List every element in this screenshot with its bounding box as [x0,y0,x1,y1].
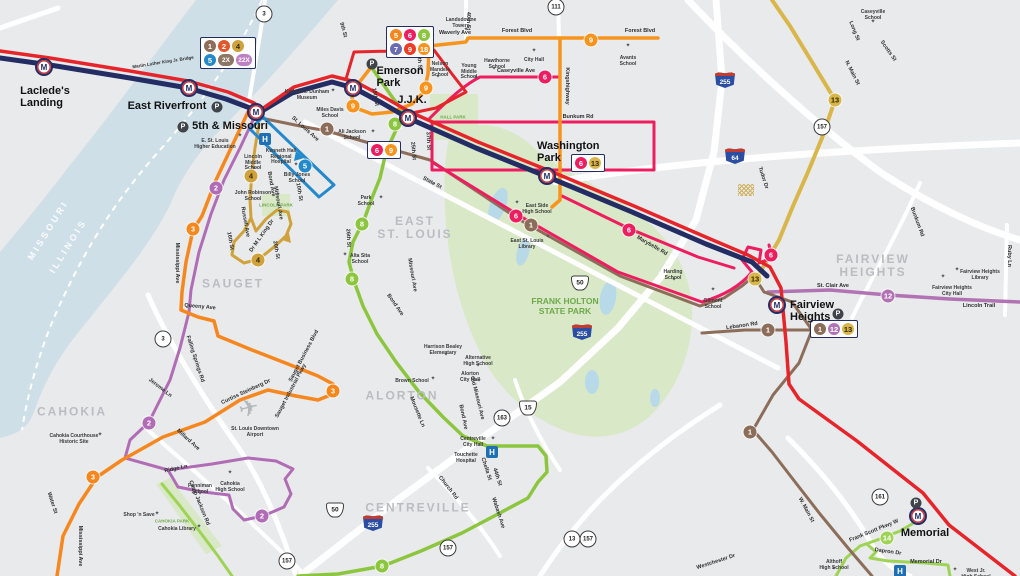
street-label: Dr M L King Dr [249,219,276,254]
landmark-diamond-icon: ✦ [531,48,536,54]
street-label: N. Main St [843,60,860,86]
poi-label: Brown School [395,379,429,385]
route-shield: 157 [580,531,597,548]
metrolink-station-east-riverfront: M [180,79,198,97]
landmark-diamond-icon: ✦ [491,66,496,72]
street-label: Wabash Ave [490,497,506,529]
street-label: Kingshighway [564,67,570,104]
poi-label: Hawthorne School [484,59,510,70]
poi-label: Landsdowne Towers [446,18,477,29]
route-shield: 13 [564,531,581,548]
landmark-diamond-icon: ✦ [870,19,875,25]
interstate-shield: 255 [363,515,383,531]
street-label: Millard Ave [175,428,201,452]
route-13-badge: 13 [829,94,842,107]
landmark-diamond-icon: ✦ [430,376,435,382]
poi-label: Shop 'n Save [123,513,154,519]
station-label-lacledes-landing: Laclede's Landing [20,86,70,109]
landmark-diamond-icon: ✦ [154,511,159,517]
route-5-badge: 5 [204,54,216,66]
area-label: CAHOKIA [37,406,107,419]
shield-number: 255 [577,330,588,340]
street-label: Lincoln Trail [963,303,995,309]
street-label: Missouri Ave [406,258,418,292]
map-labels-layer: SAUGETCAHOKIAEAST ST. LOUISALORTONCENTRE… [0,0,1020,576]
street-label: Scotts St [879,40,898,63]
landmark-diamond-icon: ✦ [237,133,242,139]
route-4-badge: 4 [252,254,265,267]
route-12-badge: 12 [828,323,840,335]
route-6-badge: 6 [623,224,636,237]
park-ride-icon: P [367,59,378,70]
poi-label: Touchette Hospital [454,453,478,464]
street-label: Water St [46,492,59,515]
street-label: Forest Blvd [625,28,655,34]
route-1-badge: 1 [744,426,757,439]
badge-row: 52X22X [204,54,252,66]
landmark-diamond-icon: ✦ [476,378,481,384]
poi-label: Billy Jones School [284,173,310,184]
street-label: Ruby Ln [1006,245,1012,267]
landmark-diamond-icon: ✦ [710,287,715,293]
poi-label: Avants School [620,56,637,67]
route-badge-box: 5687918 [386,26,434,58]
poi-label: Fairview Heights Library [960,270,1000,281]
poi-label: Kenneth Hall Regional Hospital [266,149,297,166]
hatched-area-icon [738,184,754,196]
route-6-badge: 6 [404,29,416,41]
route-1-badge: 1 [204,40,216,52]
route-3-badge: 3 [187,223,200,236]
poi-label: East Side High School [522,204,551,215]
us-route-shield: 50 [326,503,344,518]
route-7-badge: 7 [390,43,402,55]
badge-row: 124 [204,40,252,52]
station-label-emerson-park: Emerson Park [376,66,423,89]
shield-number: 255 [368,521,379,531]
us-route-shield: 15 [519,401,537,416]
landmark-diamond-icon: ✦ [435,74,440,80]
landmark-diamond-icon: ✦ [831,566,836,572]
landmark-diamond-icon: ✦ [275,192,280,198]
route-2-badge: 2 [218,40,230,52]
route-9-badge: 9 [404,43,416,55]
park-ride-icon: P [833,309,844,320]
route-4-badge: 4 [245,170,258,183]
street-label: 15th St [370,87,379,106]
route-2-badge: 2 [256,510,269,523]
poi-label: East St. Louis Library [510,239,543,250]
route-5-badge: 5 [299,160,312,173]
station-label-memorial: Memorial [901,528,949,540]
poi-label: City Hall [524,58,544,64]
landmark-diamond-icon: ✦ [196,524,201,530]
landmark-diamond-icon: ✦ [625,43,630,49]
street-label: State St [422,176,443,191]
poi-label: Gilmont School [704,299,723,310]
route-9-badge: 9 [385,144,397,156]
route-6-badge: 6 [371,144,383,156]
landmark-diamond-icon: ✦ [954,267,959,273]
shield-band [725,148,745,152]
landmark-diamond-icon: ✦ [330,88,335,94]
route-14-badge: 14 [881,532,894,545]
route-1-badge: 1 [525,219,538,232]
airplane-icon: ✈ [236,395,261,423]
route-shield: 3 [155,331,172,348]
landmark-diamond-icon: ✦ [463,27,468,33]
landmark-diamond-icon: ✦ [514,200,519,206]
route-3-badge: 3 [327,385,340,398]
shield-number: 255 [720,78,731,88]
park-ride-icon: P [212,102,223,113]
street-label: Queeny Ave [184,303,216,312]
hospital-icon: H [486,446,498,458]
street-label: 9th St [338,22,348,38]
street-label: Bunkum Rd [909,206,925,237]
route-shield: 157 [814,119,831,136]
route-shield: 163 [494,410,511,427]
metrolink-station-5th-missouri: M [247,103,265,121]
badge-row: 7918 [390,43,430,55]
landmark-diamond-icon: ✦ [545,234,550,240]
street-label: Bunkum Rd [563,114,594,120]
landmark-diamond-icon: ✦ [475,363,480,369]
area-label: ALORTON [365,390,438,403]
park-ride-icon: P [911,498,922,509]
poi-label: John Robinson School [235,191,271,202]
badge-row: 568 [390,29,430,41]
route-1-badge: 1 [762,324,775,337]
interstate-shield: 64 [725,148,745,164]
poi-label: Miles Davis School [316,108,343,119]
route-2-badge: 2 [143,417,156,430]
street-label: Jerome Ln [147,377,173,399]
landmark-diamond-icon: ✦ [671,277,676,283]
poi-label: Cahokia High School [215,482,244,493]
street-label: Martin Luther King Jr. Bridge [132,55,194,70]
street-label: Mississippi Ave [77,526,83,567]
transit-map: SAUGETCAHOKIAEAST ST. LOUISALORTONCENTRE… [0,0,1020,576]
street-label: Church Rd [437,475,459,501]
interstate-shield: 255 [572,324,592,340]
area-label: SAUGET [202,278,264,291]
shield-band [572,324,592,328]
station-label-fairview-heights: Fairview Heights [790,300,834,323]
badge-row: 11213 [814,323,854,335]
route-1-badge: 1 [321,123,334,136]
street-label: Lebanon Rd [726,321,758,331]
metrolink-station-memorial: M [909,507,927,525]
street-label: Sauget Business Blvd [288,329,320,383]
poi-label: Fairview Heights City Hall [932,286,972,297]
street-label: Falling Springs Rd [185,335,206,383]
route-shield: 157 [279,553,296,570]
park-label: FRANK HOLTON STATE PARK [531,297,598,317]
area-label: CENTREVILLE [365,502,470,515]
interstate-shield: 255 [715,72,735,88]
area-label: EAST ST. LOUIS [377,215,452,241]
landmark-diamond-icon: ✦ [490,436,495,442]
street-label: Mississippi Ave [174,243,180,284]
route-badge-box: 69 [367,141,401,159]
landmark-diamond-icon: ✦ [97,432,102,438]
route-shield: 3 [256,6,273,23]
route-9-badge: 9 [347,100,360,113]
street-label: 44th St [491,467,502,486]
street-label: Russell Ave [239,206,250,237]
street-label: Westchester Dr [696,553,736,571]
route-8-badge: 8 [376,560,389,573]
route-1-badge: 1 [814,323,826,335]
metrolink-station-emerson-park: M [344,79,362,97]
route-8-badge: 8 [346,273,359,286]
street-label: Dapron Dr [874,547,901,557]
street-label: Memorial Dr [910,559,942,565]
landmark-diamond-icon: ✦ [378,195,383,201]
route-shield: 111 [548,0,565,16]
street-label: 25th St [409,142,417,161]
route-6-badge: 6 [510,210,523,223]
shield-band [715,72,735,76]
route-8-badge: 8 [418,29,430,41]
poi-label: Park School [358,196,375,207]
poi-label: Alta Sita School [350,254,370,265]
route-6-badge: 6 [765,249,778,262]
landmark-diamond-icon: ✦ [473,75,478,81]
route-4-badge: 4 [232,40,244,52]
metrolink-station-lacledes-landing: M [35,58,53,76]
hospital-icon: H [259,133,271,145]
landmark-diamond-icon: ✦ [370,129,375,135]
route-badge-box: 12452X22X [200,37,256,69]
landmark-diamond-icon: ✦ [342,252,347,258]
street-label: 10th St [294,182,303,201]
street-label: 26th St [345,229,352,248]
metrolink-station-jjk: M [399,109,417,127]
poi-label: Cahokia Courthouse Historic Site [50,434,99,445]
street-label: 16th St [225,231,234,250]
route-13-badge: 13 [842,323,854,335]
shield-band [363,515,383,519]
street-label: Bond Ave [457,404,468,430]
street-label: Bond Ave [385,293,404,317]
airport-label: St. Louis Downtown Airport [231,427,279,438]
street-label: Forest Blvd [502,28,532,34]
route-2X-badge: 2X [218,54,234,66]
route-5-badge: 5 [390,29,402,41]
us-route-shield: 50 [571,276,589,291]
street-label: W. Main St [797,496,815,523]
street-label: Tudor Dr [757,166,770,190]
street-label: Marybelle Rd [636,235,669,257]
poi-label: Katherine Dunham Museum [285,90,329,101]
route-shield: 161 [872,489,889,506]
route-9-badge: 9 [585,34,598,47]
route-13-badge: 13 [749,273,762,286]
landmark-diamond-icon: ✦ [443,352,448,358]
street-label: Long St [847,20,860,41]
street-label: St. Clair Ave [817,283,849,289]
poi-label: Ali Jackson School [338,130,366,141]
street-label: 20th St [271,240,280,259]
landmark-diamond-icon: ✦ [227,470,232,476]
street-label: Ridge Ln [164,464,188,475]
street-label: 37th St [425,132,432,151]
route-3-badge: 3 [87,471,100,484]
poi-label: West Jr. High School [961,569,990,576]
route-12-badge: 12 [882,290,895,303]
station-label-east-riverfront: East Riverfront [128,101,207,113]
station-label-jjk: J.J.K. [397,95,426,107]
hospital-icon: H [894,565,906,576]
poi-label: Cahokia Library [158,527,196,533]
metrolink-station-fairview-heights: M [768,296,786,314]
park-label: CAHOKIA PARK [155,518,190,523]
shield-number: 64 [731,154,738,164]
route-shield: 157 [440,540,457,557]
badge-row: 69 [371,144,397,156]
route-8-badge: 8 [356,218,369,231]
street-label: St. Louis Ave [290,115,320,143]
area-label: FAIRVIEW HEIGHTS [836,253,910,279]
poi-label: Centreville City Hall [460,437,486,448]
metrolink-station-washington-park: M [538,167,556,185]
landmark-diamond-icon: ✦ [940,274,945,280]
route-22X-badge: 22X [236,54,252,66]
landmark-diamond-icon: ✦ [952,567,957,573]
route-6-badge: 6 [539,71,552,84]
station-label-5th-missouri: 5th & Missouri [192,121,268,133]
station-label-washington-park: Washington Park [537,141,600,164]
route-18-badge: 18 [418,43,430,55]
landmark-diamond-icon: ✦ [197,491,202,497]
park-label: HALL PARK [440,114,466,119]
park-ride-icon: P [178,122,189,133]
poi-label: E. St. Louis Higher Education [194,139,235,150]
route-2-badge: 2 [210,182,223,195]
